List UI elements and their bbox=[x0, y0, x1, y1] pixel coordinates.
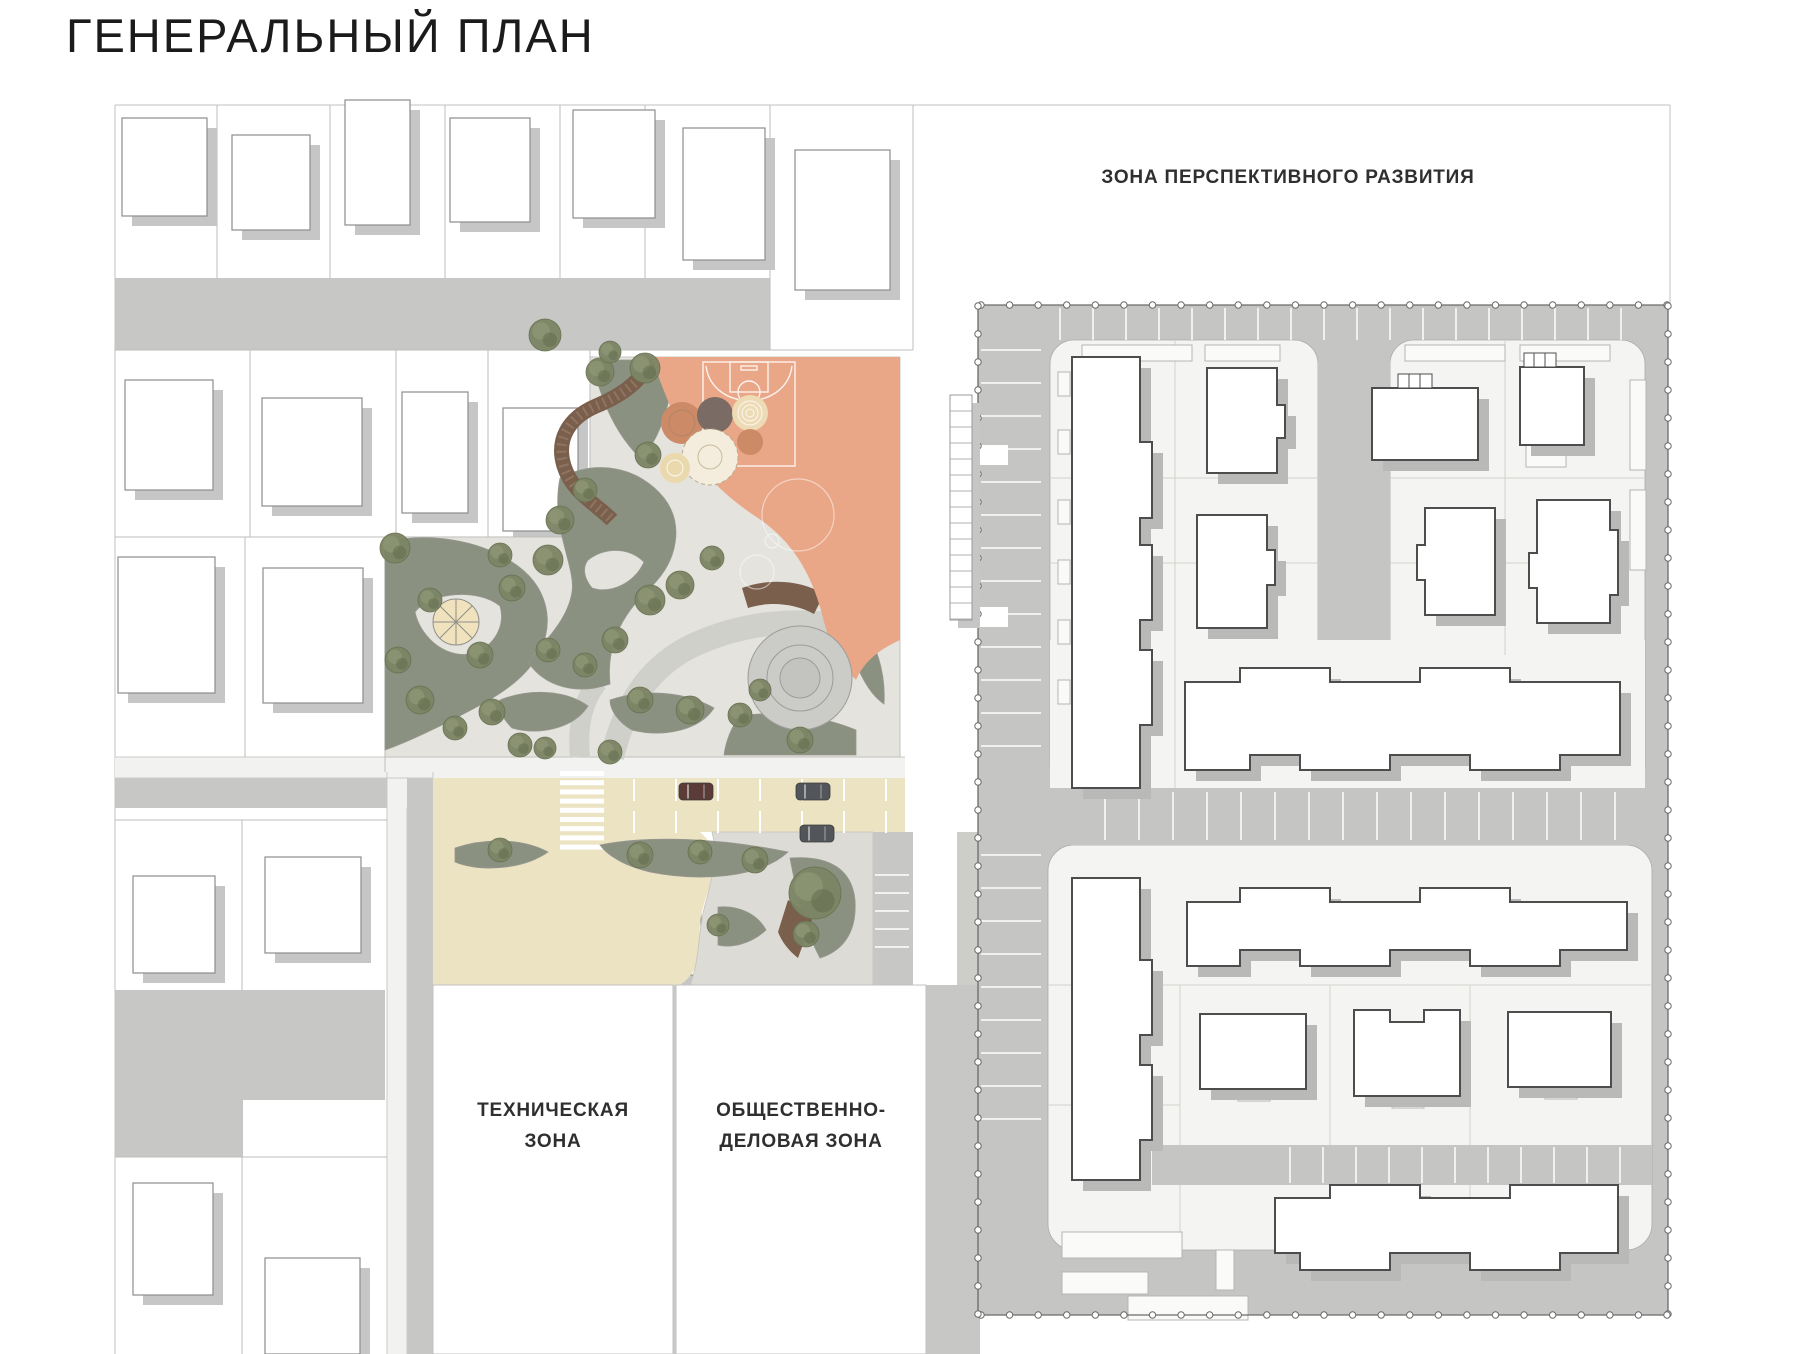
label-business-zone: ОБЩЕСТВЕННО- ДЕЛОВАЯ ЗОНА bbox=[676, 1095, 926, 1158]
car-gray-1 bbox=[796, 783, 830, 800]
crosswalk bbox=[560, 771, 604, 850]
label-technical-zone: ТЕХНИЧЕСКАЯ ЗОНА bbox=[433, 1095, 673, 1158]
car-gray-2 bbox=[800, 825, 834, 842]
car-red bbox=[679, 783, 713, 800]
label-development-zone: ЗОНА ПЕРСПЕКТИВНОГО РАЗВИТИЯ bbox=[948, 162, 1628, 193]
linear-canopy-structure bbox=[950, 395, 980, 628]
bottom-zones bbox=[433, 985, 926, 1354]
amphitheatre bbox=[748, 626, 852, 730]
page-title: ГЕНЕРАЛЬНЫЙ ПЛАН bbox=[66, 8, 595, 63]
development-block bbox=[975, 302, 1671, 1320]
